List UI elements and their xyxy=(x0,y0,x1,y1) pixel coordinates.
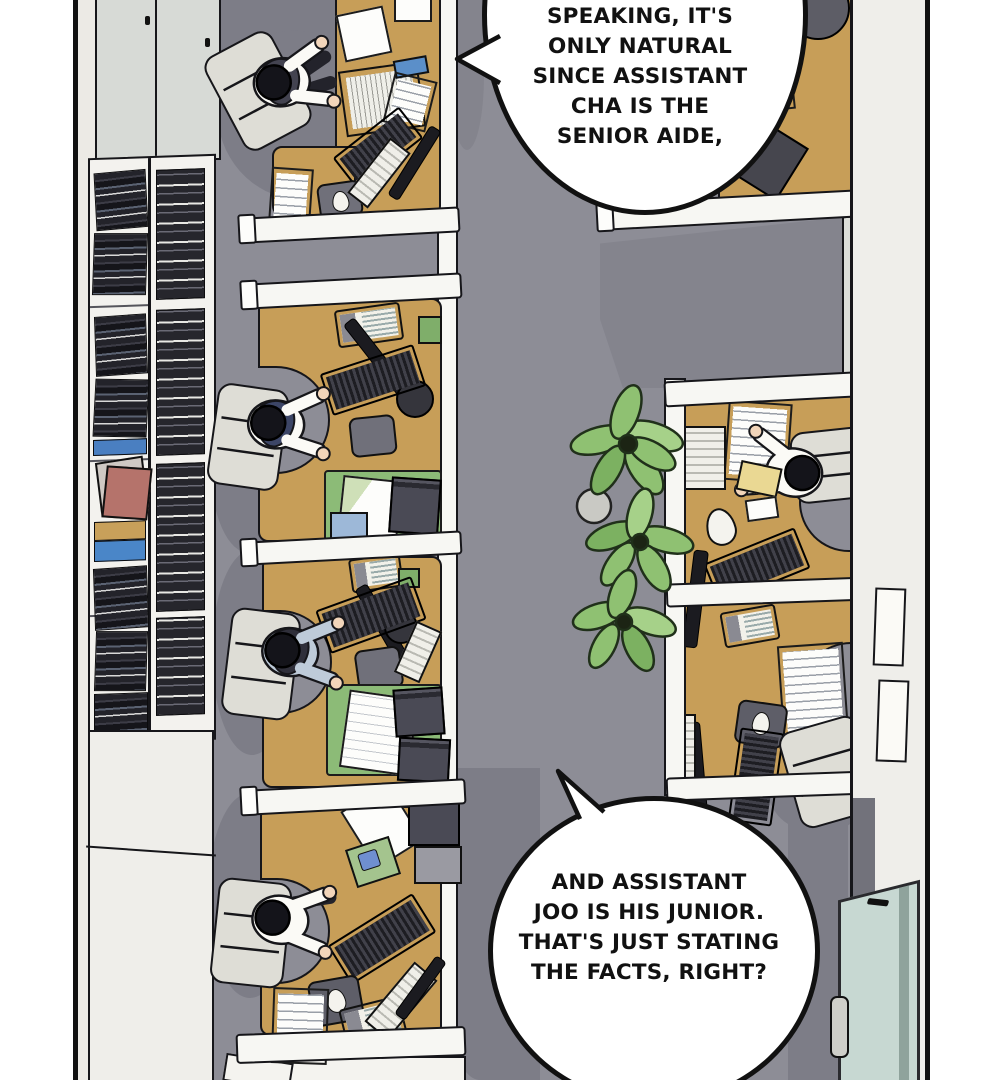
office-plants xyxy=(556,378,716,678)
book-blue xyxy=(93,438,147,456)
page-margin-left xyxy=(0,0,73,1080)
floor-shadow-top-right xyxy=(600,216,854,388)
book-stack xyxy=(94,313,148,377)
book-red xyxy=(101,465,152,520)
shelf-equipment xyxy=(156,462,205,612)
top-left-cabinet xyxy=(95,0,221,160)
shelf-equipment xyxy=(156,616,205,716)
book-stack xyxy=(94,169,149,231)
lower-left-wall xyxy=(88,730,214,1080)
book-stack xyxy=(92,233,148,295)
printer xyxy=(388,476,442,535)
sticky-note xyxy=(418,316,442,344)
mouse-pad xyxy=(348,414,398,459)
book-stack xyxy=(93,565,149,631)
shelf-equipment xyxy=(156,308,205,456)
printer xyxy=(392,686,445,737)
speech-text-top: SPEAKING, IT'S ONLY NATURAL SINCE ASSIST… xyxy=(486,2,794,152)
speech-text-bottom: AND ASSISTANT JOO IS HIS JUNIOR. THAT'S … xyxy=(494,868,804,988)
worker-3 xyxy=(239,595,360,716)
wall-frame xyxy=(873,587,907,666)
box-tan xyxy=(94,520,146,541)
worker-4 xyxy=(227,861,351,985)
notepad xyxy=(394,0,432,22)
comic-panel: SPEAKING, IT'S ONLY NATURAL SINCE ASSIST… xyxy=(0,0,1000,1080)
box-blue xyxy=(94,539,146,562)
wall-frame xyxy=(876,679,910,762)
page-margin-right xyxy=(930,0,1000,1080)
memo xyxy=(745,496,780,522)
worker-2 xyxy=(226,368,343,485)
door-handle xyxy=(830,996,849,1058)
printer xyxy=(397,737,451,784)
document xyxy=(336,6,393,63)
book-stack xyxy=(93,379,150,438)
bookshelf xyxy=(88,154,216,744)
printer-tray xyxy=(414,846,462,884)
glass-door xyxy=(838,880,920,1080)
panel-border-left xyxy=(73,0,78,1080)
book-stack xyxy=(94,631,148,691)
worker-1 xyxy=(229,21,353,145)
shelf-equipment xyxy=(156,168,205,300)
